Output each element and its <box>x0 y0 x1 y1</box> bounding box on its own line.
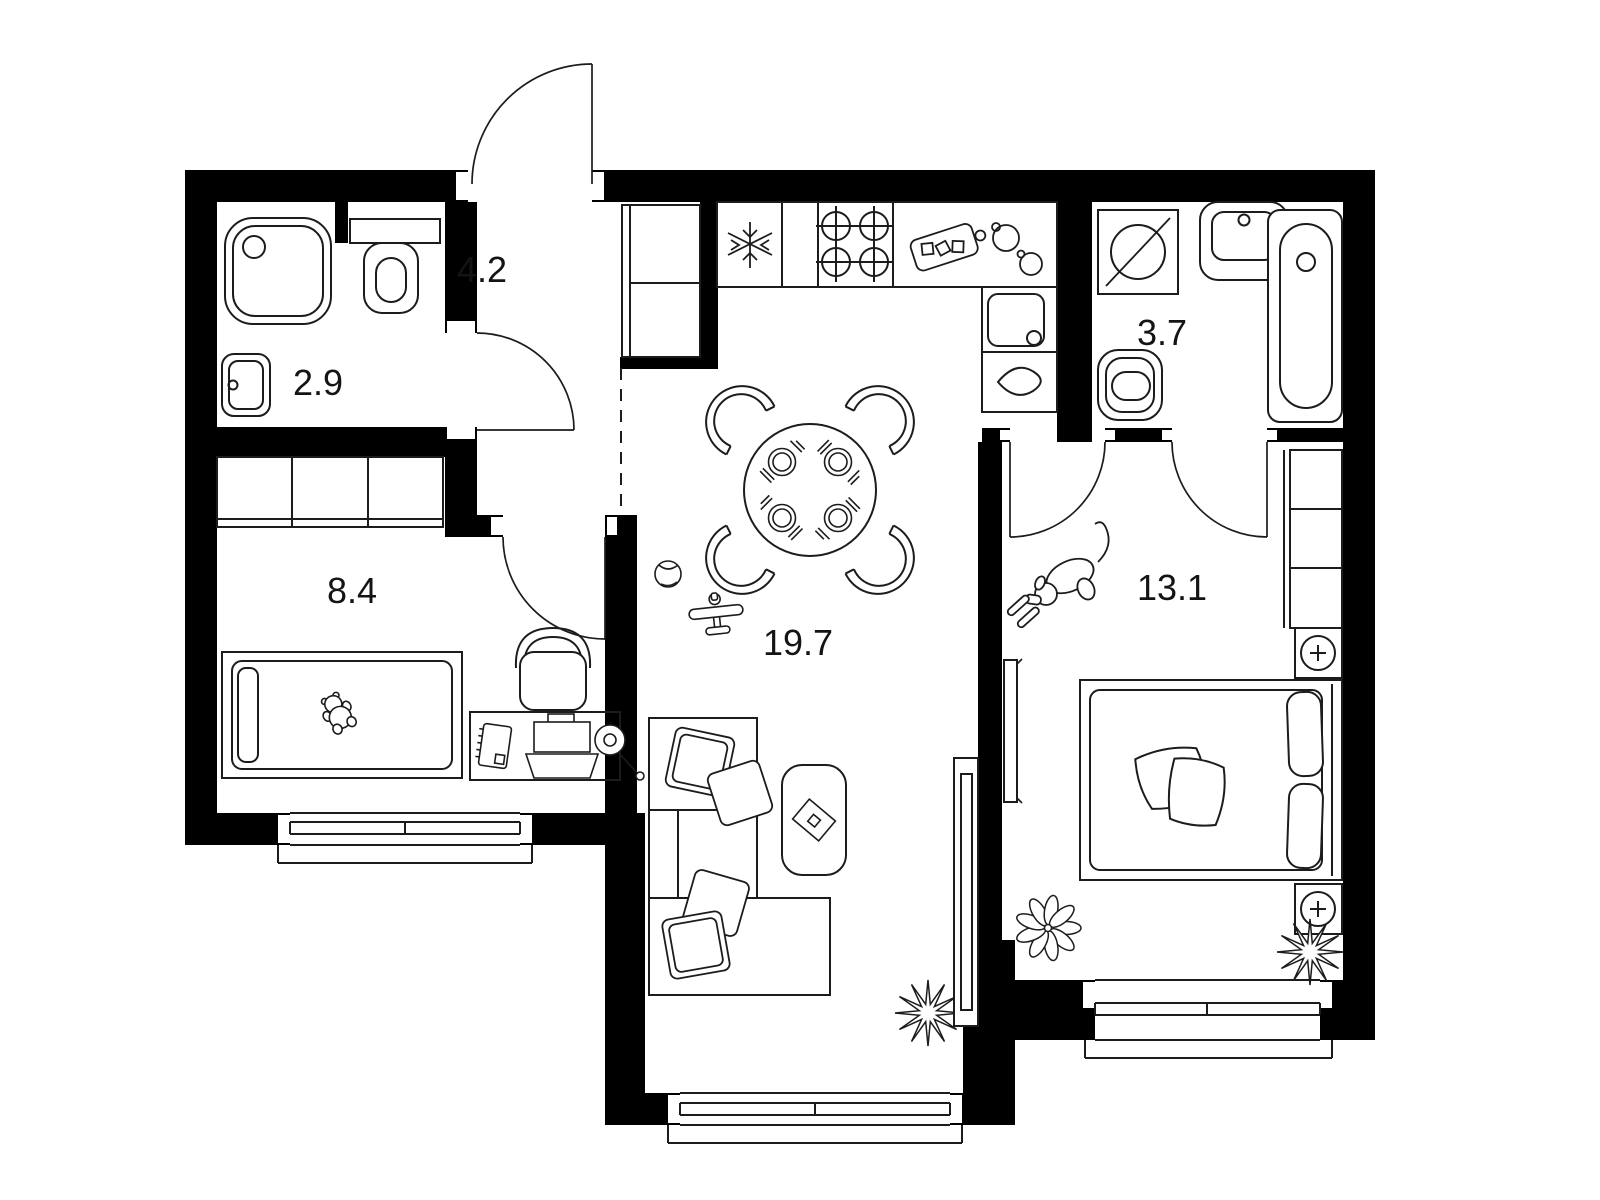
kids-wardrobe <box>217 457 443 527</box>
desk-chair <box>516 628 590 710</box>
kitchen-sink <box>988 294 1044 346</box>
bathtub <box>1268 210 1342 422</box>
window-living-room <box>668 1093 962 1143</box>
room-label-kids-room: 8.4 <box>327 570 377 611</box>
toy-ball-icon <box>655 561 681 587</box>
dining-table <box>744 424 876 556</box>
room-label-bathroom-small: 2.9 <box>293 362 343 403</box>
toilet-large <box>1098 350 1162 420</box>
entry-door <box>472 64 592 184</box>
nightstand-bottom <box>1295 884 1342 934</box>
pots-icon <box>992 223 1042 275</box>
bedroom-wardrobe <box>1284 450 1342 628</box>
tv-living <box>954 758 978 1026</box>
laptop-icon <box>526 714 598 778</box>
washbasin-small <box>222 354 270 416</box>
entry-wardrobe <box>622 205 700 357</box>
kitchen-tap-icon <box>998 368 1041 395</box>
fridge-icon <box>728 222 772 268</box>
double-bed <box>1080 680 1342 880</box>
nightstand-top <box>1295 628 1342 678</box>
room-label-hallway: 4.2 <box>457 249 507 290</box>
door-bathroom-small <box>477 333 574 430</box>
cutting-board-icon <box>909 219 990 273</box>
leaf-plant-icon <box>1015 894 1081 961</box>
coffee-table <box>782 765 846 875</box>
door-bedroom <box>1010 442 1105 537</box>
window-kids-room <box>278 813 532 863</box>
notebook-icon <box>474 723 512 769</box>
washing-machine-icon <box>1098 210 1178 294</box>
shower-tray <box>225 218 331 324</box>
toy-plane-icon <box>687 590 745 636</box>
floor-plan: 2.9 4.2 8.4 19.7 3.7 13.1 <box>0 0 1600 1200</box>
plant-living-icon <box>895 980 961 1046</box>
dog-icon <box>1006 522 1108 628</box>
door-kids-room <box>503 537 605 639</box>
tv-bedroom <box>1004 659 1022 803</box>
door-bathroom-large <box>1172 442 1267 537</box>
room-label-living-kitchen: 19.7 <box>763 622 833 663</box>
room-label-bedroom: 13.1 <box>1137 567 1207 608</box>
toilet-small <box>350 219 440 313</box>
hob-icon <box>816 206 894 282</box>
room-label-bathroom-large: 3.7 <box>1137 312 1187 353</box>
window-bedroom <box>1085 980 1332 1058</box>
